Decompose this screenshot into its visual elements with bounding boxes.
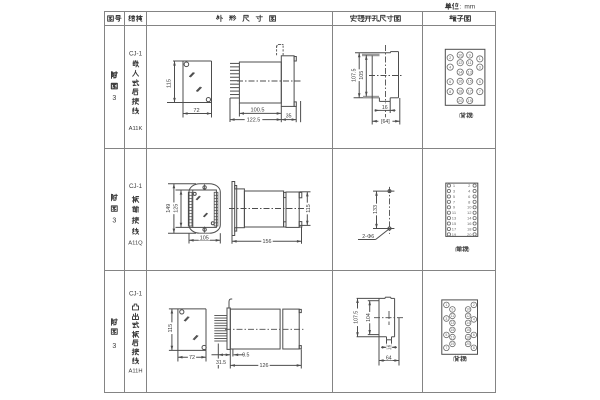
svg-text:105: 105 [359, 71, 365, 80]
svg-text:A11H: A11H [128, 369, 142, 375]
svg-text:16: 16 [387, 344, 392, 350]
svg-text:): ) [468, 247, 470, 253]
svg-text:18: 18 [466, 335, 470, 339]
svg-text:104: 104 [366, 313, 372, 322]
svg-text:CJ-1: CJ-1 [129, 183, 143, 190]
svg-text:Φ6: Φ6 [367, 234, 374, 240]
svg-text:35: 35 [286, 113, 292, 119]
svg-text:115: 115 [306, 204, 312, 213]
svg-text:72: 72 [189, 355, 195, 361]
svg-text:1: 1 [445, 303, 447, 307]
svg-text:14: 14 [466, 321, 470, 325]
svg-text:6: 6 [449, 80, 451, 84]
svg-text:72: 72 [193, 108, 199, 114]
svg-text:A11Q: A11Q [128, 241, 143, 247]
svg-text:20: 20 [467, 232, 472, 237]
svg-text:19: 19 [450, 342, 454, 346]
svg-text:133: 133 [373, 205, 379, 214]
svg-text:18: 18 [458, 89, 462, 93]
svg-text:115: 115 [167, 79, 173, 88]
svg-text:14: 14 [458, 70, 462, 74]
svg-text:15: 15 [450, 328, 454, 332]
svg-text:7: 7 [445, 346, 447, 350]
svg-text:2: 2 [449, 56, 451, 60]
svg-text:7: 7 [479, 90, 481, 94]
svg-text:18: 18 [467, 226, 472, 231]
svg-text:156: 156 [263, 239, 272, 245]
svg-text:mm: mm [464, 4, 475, 11]
svg-text:13: 13 [452, 216, 457, 221]
svg-text::: : [459, 4, 461, 11]
svg-text:12: 12 [466, 314, 470, 318]
svg-text:12: 12 [458, 61, 462, 65]
svg-text:107.5: 107.5 [353, 311, 359, 324]
svg-text:6: 6 [473, 333, 475, 337]
svg-text:1: 1 [479, 57, 481, 61]
svg-text:10: 10 [467, 205, 472, 210]
svg-text:[64]: [64] [381, 119, 390, 125]
svg-text:13: 13 [468, 70, 472, 74]
svg-text:20: 20 [466, 342, 470, 346]
svg-text:CJ-1: CJ-1 [129, 51, 143, 58]
svg-text:CJ-1: CJ-1 [129, 291, 143, 298]
svg-text:19: 19 [452, 232, 457, 237]
svg-text:16: 16 [467, 221, 472, 226]
svg-text:4: 4 [449, 65, 451, 69]
svg-text:3: 3 [112, 218, 116, 225]
svg-text:5: 5 [445, 333, 447, 337]
svg-text:125: 125 [174, 204, 180, 213]
svg-text:107.5: 107.5 [352, 68, 358, 82]
svg-text:149: 149 [166, 204, 172, 213]
svg-text:3: 3 [112, 95, 116, 102]
svg-text:4: 4 [473, 318, 475, 322]
svg-text:(: ( [459, 113, 461, 119]
svg-text:10: 10 [458, 53, 462, 57]
svg-text:105: 105 [200, 235, 209, 241]
svg-text:15: 15 [468, 80, 472, 84]
svg-text:19: 19 [468, 99, 472, 103]
svg-text:16: 16 [466, 328, 470, 332]
svg-text:): ) [466, 357, 468, 363]
svg-text:16: 16 [382, 105, 388, 111]
svg-text:11: 11 [468, 61, 472, 65]
svg-text:8: 8 [449, 90, 451, 94]
svg-text:122.5: 122.5 [247, 117, 261, 123]
svg-text:2: 2 [473, 303, 475, 307]
svg-text:3: 3 [479, 65, 481, 69]
svg-text:A11K: A11K [129, 126, 143, 132]
svg-text:12: 12 [467, 210, 472, 215]
svg-text:10: 10 [466, 308, 470, 312]
svg-text:9: 9 [469, 53, 471, 57]
svg-text:9.5: 9.5 [242, 353, 249, 359]
svg-text:3: 3 [112, 343, 116, 350]
svg-text:3: 3 [445, 317, 447, 321]
svg-text:(: ( [455, 247, 457, 253]
svg-text:13: 13 [450, 321, 454, 325]
svg-text:100.5: 100.5 [251, 108, 265, 114]
svg-text:): ) [472, 113, 474, 119]
svg-text:17: 17 [450, 335, 454, 339]
svg-text:9: 9 [451, 308, 453, 312]
svg-text:15: 15 [452, 221, 457, 226]
svg-text:31.5: 31.5 [216, 360, 226, 366]
svg-text:115: 115 [168, 324, 174, 333]
svg-text:5: 5 [479, 80, 481, 84]
svg-text:11: 11 [451, 314, 455, 318]
svg-text:17: 17 [452, 226, 457, 231]
svg-text:(: ( [453, 357, 455, 363]
svg-text:16: 16 [458, 80, 462, 84]
svg-text:14: 14 [467, 216, 472, 221]
svg-text:64: 64 [386, 355, 392, 361]
svg-text:8: 8 [473, 346, 475, 350]
svg-text:20: 20 [458, 99, 462, 103]
svg-text:126: 126 [260, 363, 269, 369]
svg-text:17: 17 [468, 89, 472, 93]
